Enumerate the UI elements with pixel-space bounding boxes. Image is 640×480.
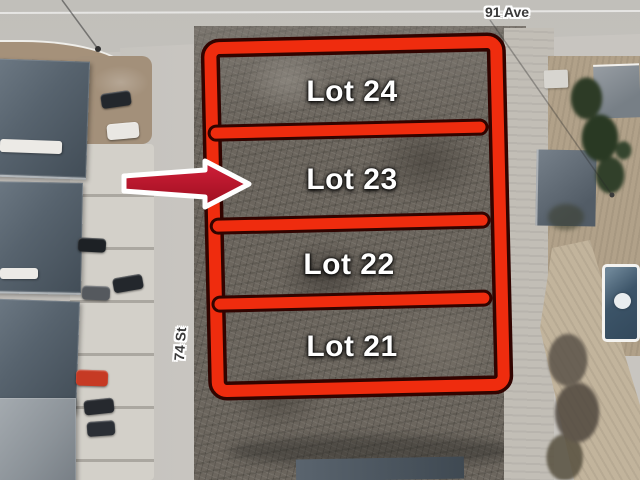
lot-23-label: Lot 23: [306, 163, 397, 197]
lot-divider: [220, 298, 484, 304]
street-label-91-ave: 91 Ave: [485, 4, 529, 20]
power-line: [62, 0, 98, 49]
lot-22-label: Lot 22: [303, 248, 394, 282]
lot-21-label: Lot 21: [306, 330, 397, 364]
lot-divider: [218, 220, 482, 226]
street-label-74-st: 74 St: [171, 327, 189, 362]
power-line: [0, 11, 640, 13]
utility-pole: [95, 46, 101, 52]
utility-pole: [610, 193, 615, 198]
lot-divider: [216, 127, 480, 133]
annotation-overlay: [0, 0, 640, 480]
satellite-map: Lot 24 Lot 23 Lot 22 Lot 21 91 Ave 74 St: [0, 0, 640, 480]
lot-24-label: Lot 24: [306, 75, 397, 109]
arrow-icon: [124, 161, 249, 207]
